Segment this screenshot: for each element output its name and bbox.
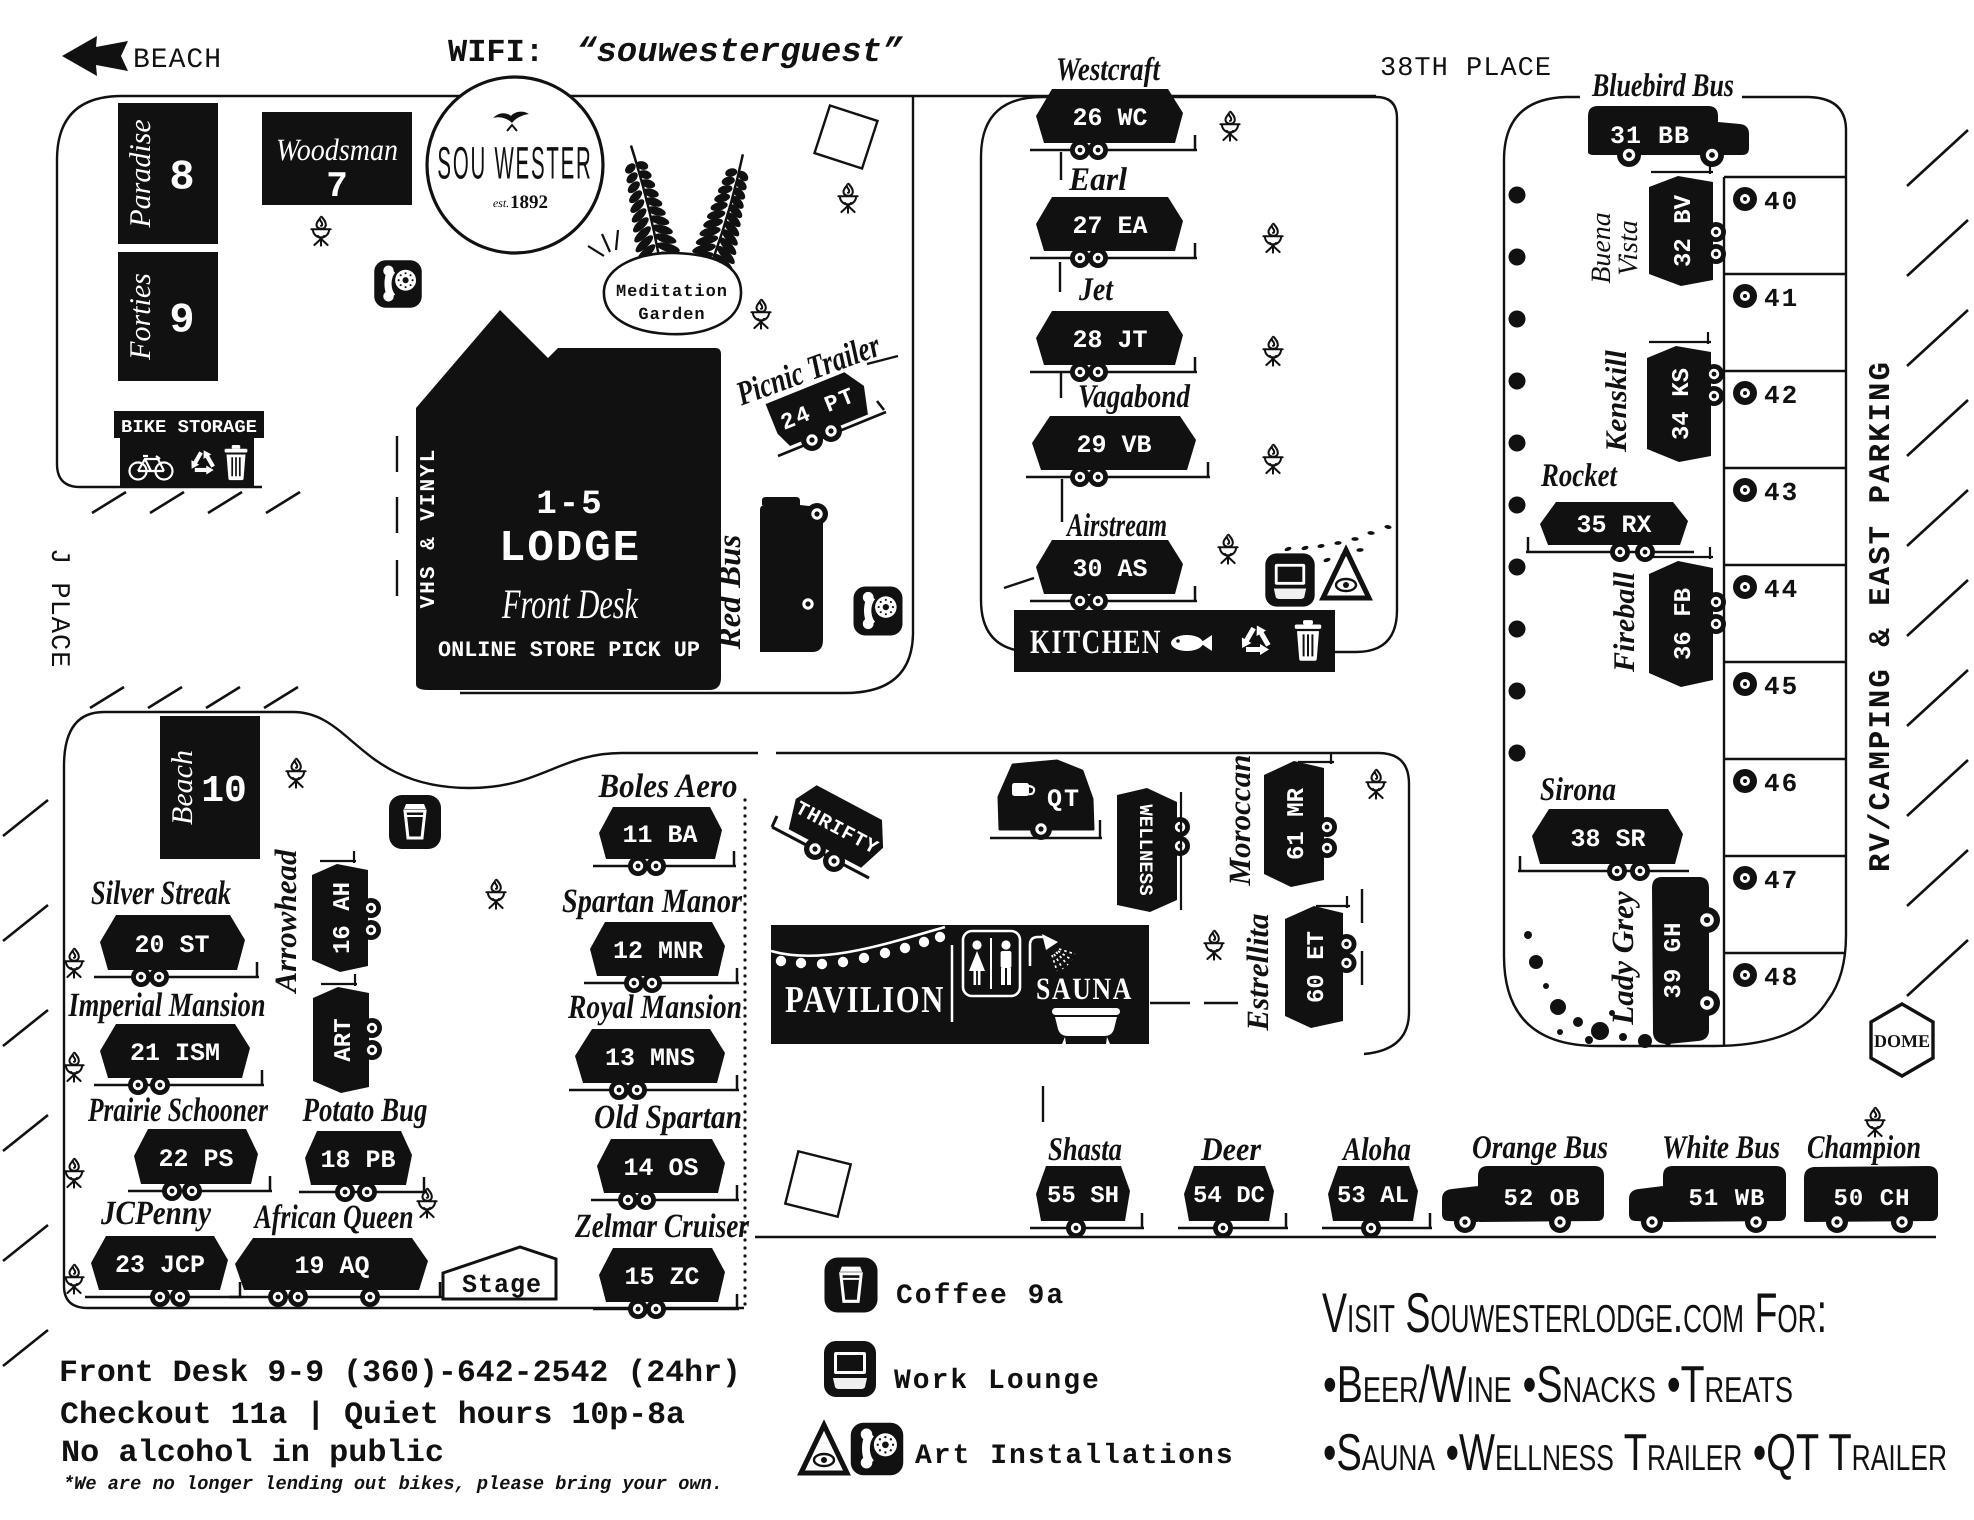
svg-text:ART: ART [331,1018,358,1061]
svg-text:est.: est. [493,196,509,210]
svg-text:Red Bus: Red Bus [712,535,748,651]
svg-text:BIKE STORAGE: BIKE STORAGE [121,418,257,438]
svg-text:7: 7 [326,166,348,207]
svg-text:Boles Aero: Boles Aero [598,768,738,805]
svg-text:30 AS: 30 AS [1072,555,1147,584]
svg-text:27 EA: 27 EA [1072,212,1147,241]
svg-text:1892: 1892 [510,192,548,213]
svg-text:Earl: Earl [1068,162,1128,198]
svg-text:31 BB: 31 BB [1610,122,1690,151]
svg-text:61 MR: 61 MR [1284,787,1311,860]
svg-text:47: 47 [1764,866,1799,896]
svg-text:60 ET: 60 ET [1304,931,1331,1003]
svg-text:No alcohol in public: No alcohol in public [61,1436,444,1471]
svg-text:Checkout 11a | Quiet hours 10p: Checkout 11a | Quiet hours 10p-8a [60,1398,685,1433]
svg-text:Old Spartan: Old Spartan [594,1099,742,1136]
svg-text:Estrellita: Estrellita [1240,913,1275,1031]
svg-text:WIFI:: WIFI: [448,34,544,71]
svg-text:Vista: Vista [1613,220,1644,275]
svg-text:RV/CAMPING & EAST PARKING: RV/CAMPING & EAST PARKING [1865,360,1899,872]
svg-text:JCPenny: JCPenny [100,1195,212,1232]
svg-text:Front Desk 9-9 (360)-642-2542: Front Desk 9-9 (360)-642-2542 (24hr) [59,1356,741,1391]
svg-text:Kenskill: Kenskill [1600,349,1633,452]
svg-text:•Sauna •Wellness Trailer •QT T: •Sauna •Wellness Trailer •QT Trailer [1323,1424,1947,1482]
svg-text:WELLNESS: WELLNESS [1134,804,1156,895]
svg-text:J PLACE: J PLACE [43,548,73,668]
svg-text:26 WC: 26 WC [1072,104,1147,133]
svg-text:38TH PLACE: 38TH PLACE [1380,54,1552,84]
svg-text:29 VB: 29 VB [1076,431,1151,460]
svg-text:•Beer/Wine •Snacks •Treats: •Beer/Wine •Snacks •Treats [1323,1356,1793,1414]
svg-text:Art Installations: Art Installations [915,1441,1235,1472]
svg-text:QT: QT [1047,785,1081,814]
svg-text:Woodsman: Woodsman [276,132,398,167]
svg-text:Fireball: Fireball [1608,571,1641,673]
svg-text:Potato Bug: Potato Bug [302,1092,428,1129]
svg-text:Meditation: Meditation [616,283,728,302]
svg-text:VHS & VINYL: VHS & VINYL [418,448,441,609]
svg-text:44: 44 [1764,575,1799,605]
svg-text:DOME: DOME [1874,1031,1930,1051]
svg-text:19 AQ: 19 AQ [294,1252,369,1281]
svg-text:Work Lounge: Work Lounge [894,1366,1101,1397]
svg-text:55 SH: 55 SH [1047,1183,1119,1210]
svg-text:20 ST: 20 ST [134,931,209,960]
svg-text:18 PB: 18 PB [320,1146,395,1175]
svg-text:34 KS: 34 KS [1669,368,1696,440]
svg-text:Zelmar Cruiser: Zelmar Cruiser [574,1208,749,1245]
svg-text:Shasta: Shasta [1048,1132,1122,1168]
svg-text:Silver Streak: Silver Streak [91,875,231,912]
svg-text:LODGE: LODGE [499,524,641,574]
svg-text:Coffee 9a: Coffee 9a [896,1281,1065,1312]
svg-text:SOU WESTER: SOU WESTER [437,138,592,189]
svg-text:African Queen: African Queen [253,1199,414,1236]
svg-text:40: 40 [1764,187,1799,217]
svg-text:Vagabond: Vagabond [1078,379,1190,415]
svg-text:Airstream: Airstream [1066,508,1167,544]
svg-text:53 AL: 53 AL [1337,1183,1409,1210]
svg-text:35 RX: 35 RX [1576,511,1651,540]
svg-text:Deer: Deer [1200,1132,1262,1168]
svg-text:Westcraft: Westcraft [1056,52,1161,88]
svg-text:1-5: 1-5 [536,486,603,524]
svg-text:11 BA: 11 BA [622,821,697,850]
svg-text:“souwesterguest”: “souwesterguest” [576,34,904,72]
svg-text:22 PS: 22 PS [158,1145,233,1174]
svg-text:Prairie Schooner: Prairie Schooner [87,1092,268,1129]
svg-text:51 WB: 51 WB [1688,1186,1765,1213]
svg-text:Orange Bus: Orange Bus [1472,1130,1608,1166]
svg-text:Jet: Jet [1078,272,1114,308]
svg-text:PAVILION: PAVILION [785,979,945,1021]
svg-text:21 ISM: 21 ISM [130,1039,220,1068]
svg-text:Forties: Forties [124,273,157,361]
svg-text:32 BV: 32 BV [1671,194,1698,267]
svg-text:50 CH: 50 CH [1833,1186,1910,1213]
svg-text:White Bus: White Bus [1662,1130,1780,1166]
svg-text:54 DC: 54 DC [1193,1183,1265,1210]
svg-text:Arrowhead: Arrowhead [268,849,303,994]
svg-text:Imperial Mansion: Imperial Mansion [68,987,266,1024]
svg-text:10: 10 [201,770,247,813]
svg-text:Bluebird Bus: Bluebird Bus [1591,68,1734,104]
svg-text:41: 41 [1764,284,1799,314]
svg-text:46: 46 [1764,769,1799,799]
svg-text:KITCHEN: KITCHEN [1030,624,1162,661]
svg-text:12 MNR: 12 MNR [613,937,703,966]
svg-text:Spartan Manor: Spartan Manor [562,883,743,920]
svg-text:ONLINE STORE PICK UP: ONLINE STORE PICK UP [438,638,700,663]
svg-text:13 MNS: 13 MNS [605,1044,695,1073]
svg-text:23 JCP: 23 JCP [115,1251,205,1280]
svg-text:38 SR: 38 SR [1570,825,1645,854]
svg-text:Royal Mansion: Royal Mansion [567,989,742,1026]
svg-text:Lady Grey: Lady Grey [1605,891,1640,1026]
svg-text:Stage: Stage [462,1270,542,1300]
svg-text:Front Desk: Front Desk [501,582,639,628]
svg-text:Beach: Beach [166,750,199,825]
svg-text:14 OS: 14 OS [623,1154,698,1183]
svg-text:28 JT: 28 JT [1072,326,1147,355]
svg-text:Rocket: Rocket [1540,458,1617,494]
svg-text:SAUNA: SAUNA [1036,971,1133,1006]
svg-text:48: 48 [1764,963,1799,993]
svg-text:36 FB: 36 FB [1671,588,1698,660]
svg-text:Visit Souwesterlodge.com For:: Visit Souwesterlodge.com For: [1322,1281,1827,1344]
svg-text:BEACH: BEACH [133,45,222,76]
svg-text:Aloha: Aloha [1341,1132,1411,1168]
svg-text:39 GH: 39 GH [1661,921,1688,998]
svg-text:Moroccan: Moroccan [1222,755,1257,887]
svg-text:15 ZC: 15 ZC [624,1263,699,1292]
svg-text:Champion: Champion [1807,1130,1921,1166]
svg-text:Garden: Garden [638,306,705,325]
svg-text:Paradise: Paradise [124,119,157,228]
svg-text:43: 43 [1764,478,1799,508]
svg-text:16 AH: 16 AH [330,882,357,954]
svg-text:8: 8 [169,154,194,202]
svg-text:42: 42 [1764,381,1799,411]
svg-text:52 OB: 52 OB [1503,1186,1580,1213]
svg-text:9: 9 [169,297,194,345]
svg-text:Sirona: Sirona [1540,772,1616,808]
svg-text:*We are no longer lending out: *We are no longer lending out bikes, ple… [63,1473,723,1495]
svg-text:45: 45 [1764,672,1799,702]
